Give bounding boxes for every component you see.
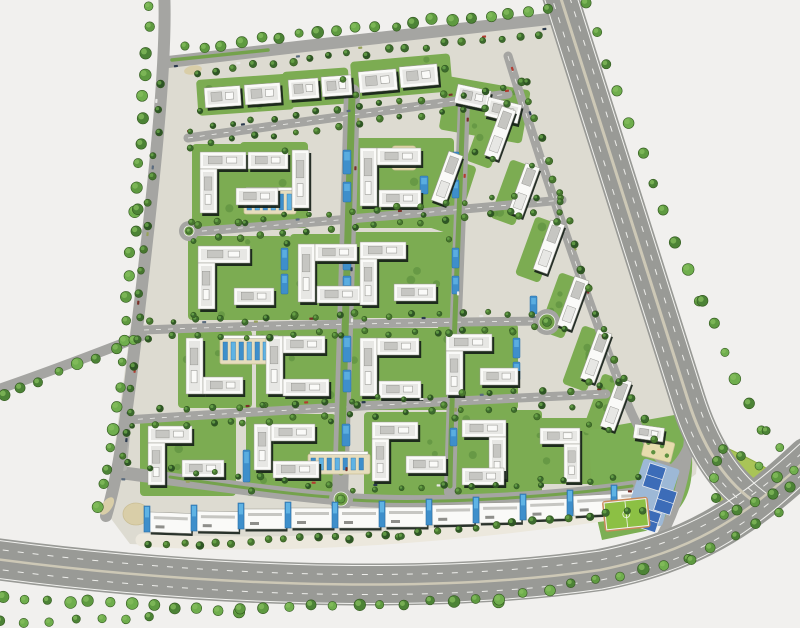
parked-car (296, 218, 300, 221)
apartment-building (377, 148, 423, 168)
apartment-building (273, 461, 321, 481)
parked-car (254, 320, 258, 322)
retail-building (432, 504, 476, 527)
parked-car (419, 398, 423, 400)
parked-car (312, 482, 316, 484)
parked-car (137, 301, 140, 305)
master-plan-image (0, 0, 800, 628)
parked-car (628, 490, 632, 492)
glass-atrium-divider (285, 502, 291, 528)
apartment-building (379, 381, 423, 401)
retail-building (149, 512, 193, 536)
parked-car (151, 165, 154, 169)
parked-car (345, 467, 347, 471)
apartment-building (186, 338, 205, 397)
parked-car (362, 401, 366, 403)
apartment-building (234, 288, 276, 308)
parked-car (296, 55, 300, 58)
parked-car (146, 232, 149, 236)
parked-car (467, 118, 469, 122)
glass-atrium-divider (379, 501, 385, 527)
glass-atrium-divider (426, 499, 432, 525)
parked-car (437, 484, 441, 486)
apartment-building (317, 286, 363, 306)
retail-building (479, 502, 523, 525)
parked-car (202, 321, 206, 323)
apartment-building (379, 190, 423, 210)
glass-atrium-divider (238, 503, 244, 529)
apartment-building (360, 148, 379, 209)
parked-car (358, 46, 362, 49)
apartment-building (292, 150, 311, 211)
glass-atrium-divider (567, 490, 573, 516)
apartment-building (394, 284, 438, 304)
parked-car (246, 405, 250, 407)
apartment-building (283, 379, 331, 399)
parked-car (155, 99, 158, 103)
parked-car (304, 401, 308, 403)
parked-car (398, 210, 402, 213)
roundabout (534, 309, 560, 335)
master-plan-svg (0, 0, 800, 628)
apartment-building (244, 82, 284, 108)
parked-car (121, 478, 125, 480)
parked-car (354, 166, 356, 170)
retail-building (197, 511, 241, 534)
apartment-building (480, 368, 520, 388)
apartment-building (315, 244, 359, 264)
glass-atrium-divider (332, 502, 338, 528)
retail-building (244, 509, 288, 532)
apartment-building (198, 263, 217, 312)
apartment-building (254, 424, 273, 473)
apartment-building (360, 259, 379, 308)
parked-car (174, 65, 178, 68)
apartment-building (564, 444, 582, 485)
apartment-building (271, 424, 317, 444)
apartment-building (200, 169, 219, 216)
parked-car (422, 317, 426, 319)
apartment-building (203, 377, 245, 397)
parked-car (373, 484, 377, 486)
glass-atrium-divider (520, 494, 526, 520)
apartment-building (298, 244, 317, 305)
glass-atrium-divider (473, 497, 479, 523)
apartment-building (266, 336, 285, 397)
apartment-building (360, 338, 379, 399)
apartment-building (204, 85, 244, 111)
parked-car (455, 408, 457, 412)
apartment-building (358, 68, 400, 95)
apartment-building (236, 188, 280, 208)
apartment-building (399, 63, 441, 90)
parked-car (236, 62, 240, 65)
parked-car (457, 291, 459, 295)
retail-building (291, 508, 335, 531)
parked-car (186, 481, 190, 483)
parked-car (350, 267, 352, 271)
parked-car (351, 318, 353, 322)
apartment-building (288, 78, 322, 103)
parked-car (125, 438, 128, 442)
retail-building (338, 508, 382, 531)
apartment-building (372, 439, 391, 484)
parked-car (542, 28, 546, 31)
parked-car (463, 174, 465, 178)
glass-atrium-divider (144, 506, 150, 532)
apartment-building (283, 336, 327, 356)
retail-building (385, 507, 429, 530)
apartment-building (248, 152, 290, 172)
glass-atrium-divider (191, 505, 197, 531)
apartment-building (377, 338, 421, 358)
apartment-building (406, 456, 448, 476)
apartment-building (321, 75, 355, 100)
parked-car (480, 394, 484, 396)
parked-car (479, 315, 483, 317)
apartment-building (182, 460, 226, 480)
